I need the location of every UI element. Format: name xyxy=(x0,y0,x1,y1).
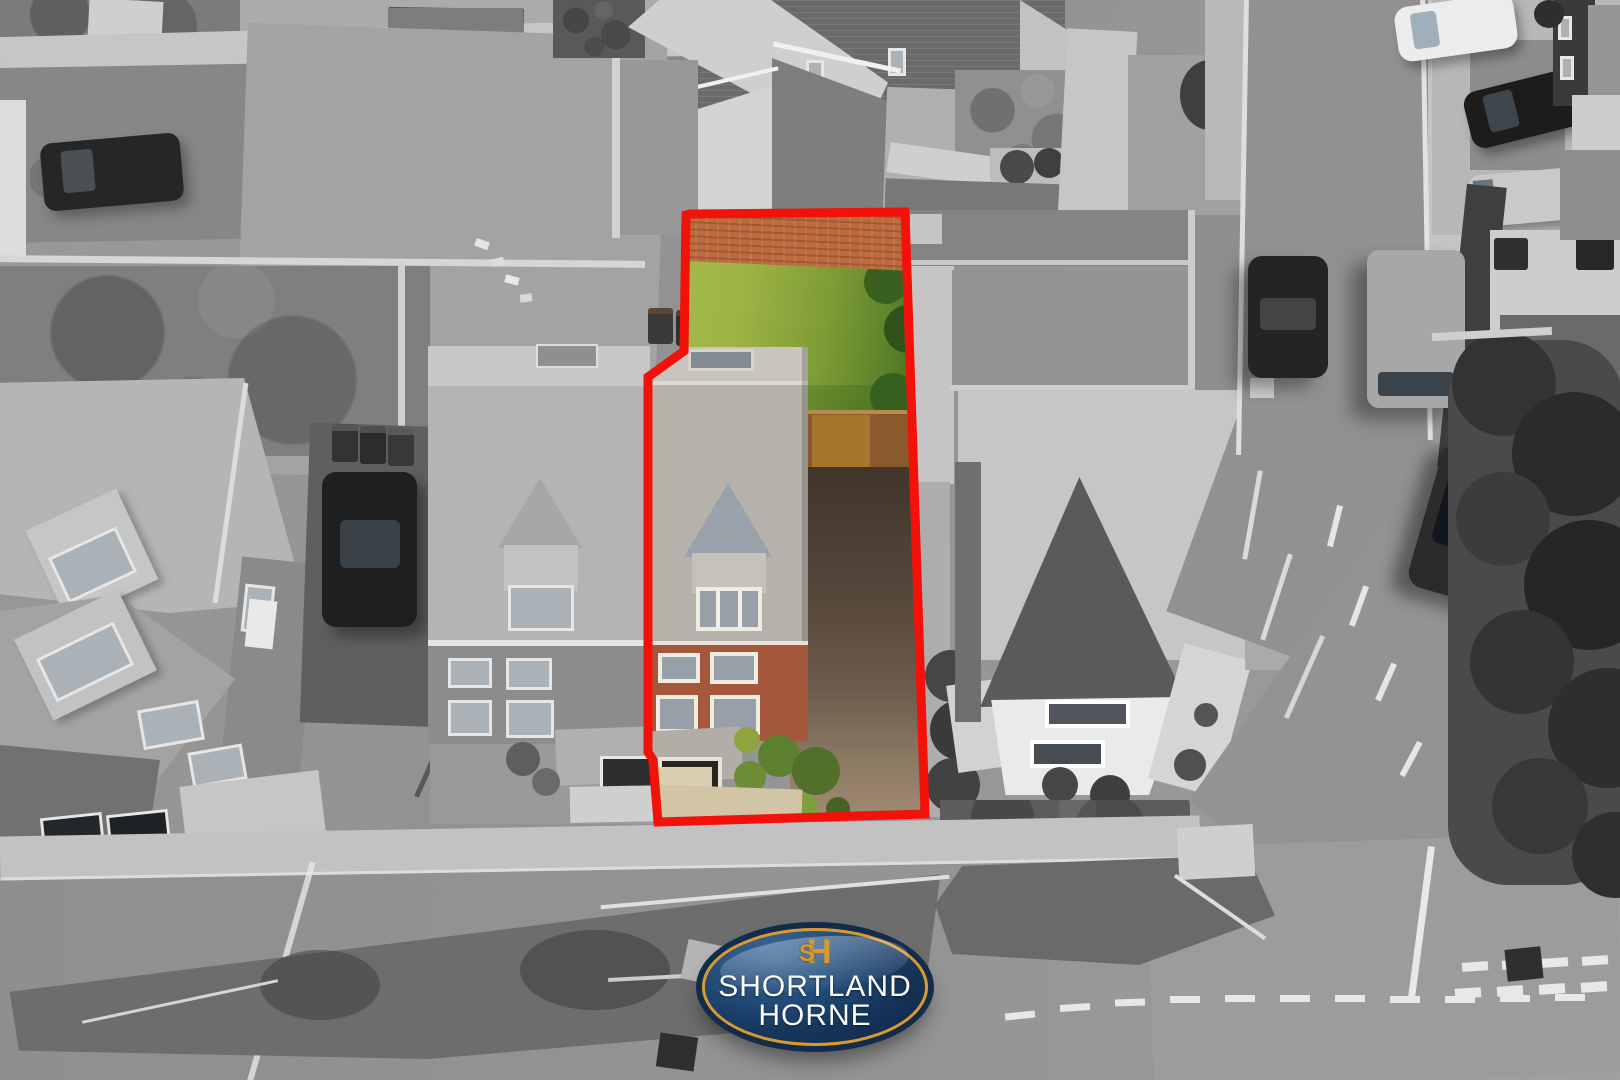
semi-window-gray xyxy=(506,658,552,690)
sh-monogram-icon: H S xyxy=(793,937,837,973)
giveway-dash xyxy=(1582,955,1609,966)
road-van-windshield xyxy=(1378,372,1454,396)
gravel-left-of-house xyxy=(620,60,698,235)
centre-dash-horizontal xyxy=(1500,995,1530,1002)
manhole-light xyxy=(1250,378,1274,398)
centre-dash-horizontal xyxy=(1335,995,1365,1002)
semi-skylight-gray xyxy=(536,344,598,368)
bin-row xyxy=(360,426,386,464)
centre-dash-horizontal xyxy=(1280,995,1310,1002)
road-car-glass xyxy=(1260,298,1316,330)
wheelie-bin xyxy=(648,308,673,344)
garden-wall-cap xyxy=(908,260,1195,265)
drain-grate xyxy=(656,1033,698,1072)
highlighted-plot xyxy=(640,205,932,827)
aerial-photo: H S SHORTLAND HORNE xyxy=(0,0,1620,1080)
shrub xyxy=(1174,749,1206,781)
verge-dark-patch xyxy=(260,950,380,1020)
giveway-dash xyxy=(1542,957,1569,968)
wheelie-bin xyxy=(1494,238,1528,270)
logo-name-line2: HORNE xyxy=(758,1002,871,1031)
centre-dash-horizontal xyxy=(1225,995,1255,1002)
centre-dash-horizontal xyxy=(1115,998,1145,1006)
washing-line-item xyxy=(520,293,533,303)
garden-wall-gray xyxy=(908,210,1195,266)
semi-window-gray xyxy=(506,700,554,738)
monogram-letter-s: S xyxy=(799,942,815,966)
plot-path xyxy=(651,784,802,823)
fence-gray-vertical xyxy=(1188,210,1195,392)
centre-dash-horizontal xyxy=(1390,996,1420,1003)
shrub xyxy=(1194,703,1218,727)
semi-path-gray xyxy=(570,785,666,823)
paved-path-gray xyxy=(906,266,954,484)
plot-dormer-window xyxy=(696,587,762,631)
plot-roof-ridge xyxy=(648,381,808,385)
fence-vertical xyxy=(398,262,405,447)
shrub xyxy=(506,742,540,776)
logo-name-line1: SHORTLAND xyxy=(718,973,911,1002)
plot-window xyxy=(710,652,758,684)
verge-dark-patch xyxy=(520,930,670,1010)
centre-dash-horizontal xyxy=(1445,996,1475,1003)
gravel-right-edge xyxy=(1572,95,1620,155)
estate-agent-logo-badge: H S SHORTLAND HORNE xyxy=(702,928,928,1046)
car-glass xyxy=(340,520,400,568)
mid-right-roof xyxy=(1560,150,1620,240)
centre-dash-horizontal xyxy=(1170,996,1200,1003)
corner-house-window xyxy=(1560,56,1574,80)
plot-fence-gate xyxy=(812,415,870,469)
plot-dormer-mullion xyxy=(716,591,720,627)
plot-dormer-mullion xyxy=(738,591,742,627)
car-windshield xyxy=(60,149,96,194)
plot-bush xyxy=(792,747,840,795)
white-house-wall-left xyxy=(955,462,981,722)
wheelie-bin xyxy=(1576,238,1614,270)
semi-dormer-gray-window xyxy=(508,585,574,631)
giveway-dash xyxy=(1462,961,1489,972)
plot-roof-edge-shadow xyxy=(802,347,808,647)
hedge-square-texture xyxy=(553,0,645,58)
left-verge-strip xyxy=(1205,0,1245,200)
neighbour-gravel xyxy=(952,270,1195,390)
giveway-dash xyxy=(1581,981,1608,993)
plot-window xyxy=(656,695,698,733)
bin-row xyxy=(332,424,358,462)
shrub xyxy=(1042,767,1078,803)
shrub xyxy=(1000,150,1034,184)
left-house-side-gate xyxy=(245,599,278,650)
semi-window-gray xyxy=(448,700,492,736)
gate-gray xyxy=(910,214,942,244)
fence-left-of-house xyxy=(612,58,620,238)
plot-skylight xyxy=(688,349,754,371)
drain-grate xyxy=(1504,946,1543,982)
white-house-window xyxy=(1045,700,1130,728)
semi-window-gray xyxy=(448,658,492,688)
house-corner-far-left xyxy=(0,100,26,260)
plot-bush xyxy=(826,797,850,821)
bin-row xyxy=(388,428,414,466)
plot-bush xyxy=(734,727,760,753)
dark-shrub xyxy=(1534,0,1564,28)
white-house-window xyxy=(1030,740,1105,768)
white-car-windshield xyxy=(1410,10,1441,49)
plot-window xyxy=(658,653,700,683)
verge-slab-patch xyxy=(1177,824,1256,880)
centre-dash-horizontal xyxy=(1555,994,1585,1001)
shrub xyxy=(532,768,560,796)
